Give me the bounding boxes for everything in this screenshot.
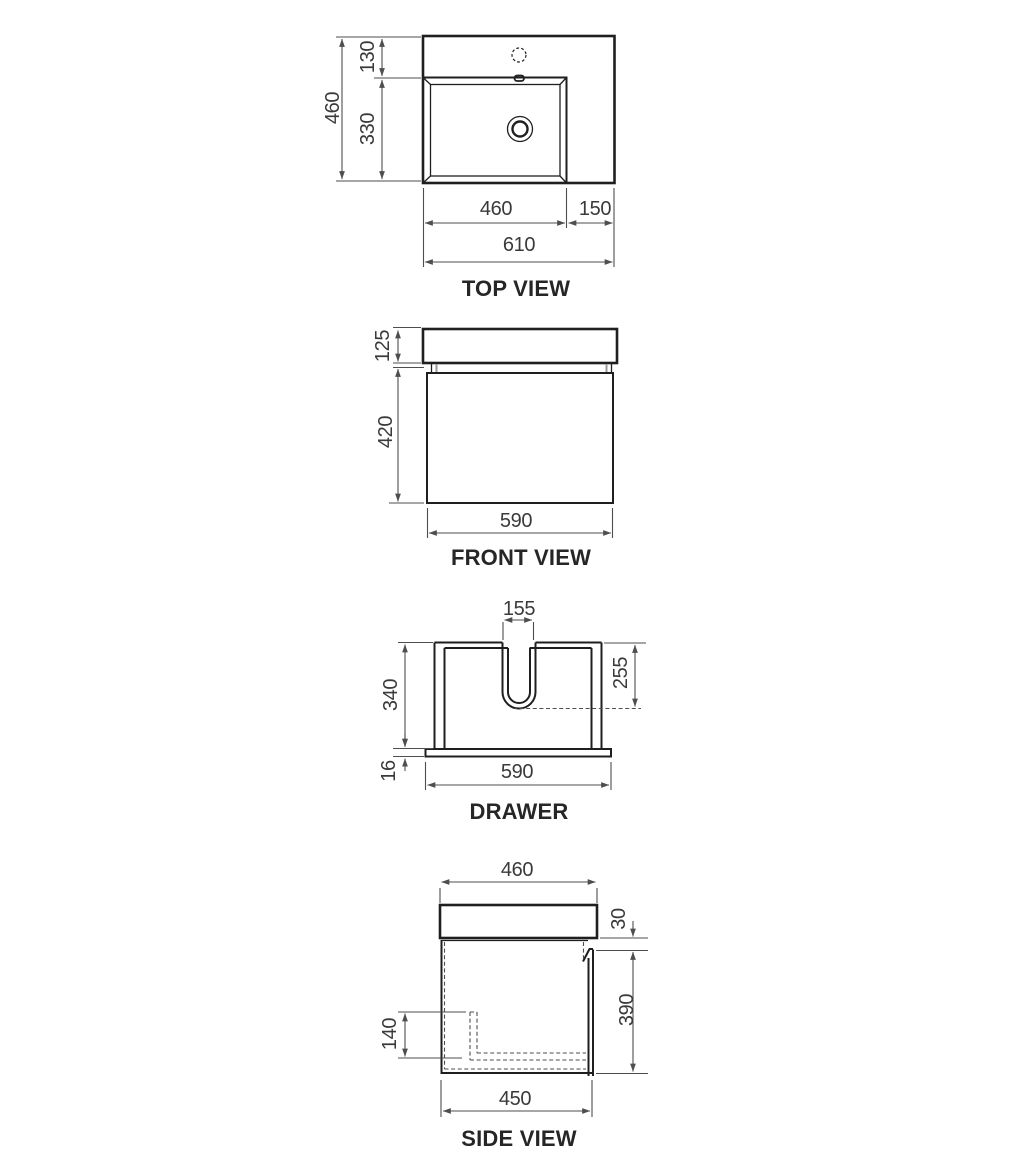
reveal-shadow-ticks — [437, 364, 607, 372]
plumbing-cutout — [503, 643, 536, 709]
benchtop-side-outline — [440, 905, 597, 938]
dim-label-cutout-width: 155 — [503, 599, 535, 619]
reveal-gap-lines — [432, 363, 612, 373]
dim-label-cabinet-width: 590 — [500, 511, 532, 531]
dim-label-cabinet-depth: 450 — [499, 1089, 531, 1109]
dim-label-top-reveal: 30 — [609, 908, 629, 929]
dim-label-drawer-width: 590 — [501, 762, 533, 782]
dim-label-benchtop-height: 125 — [373, 330, 393, 362]
drawer-view-title: DRAWER — [470, 799, 569, 825]
dim-label-recess-height: 140 — [380, 1018, 400, 1050]
dim-label-basin-depth: 330 — [358, 113, 378, 145]
top-view-title: TOP VIEW — [462, 276, 570, 302]
hidden-drawer-lines — [445, 942, 587, 1069]
basin-bevels — [423, 78, 567, 184]
dim-label-cutout-depth: 255 — [611, 657, 631, 689]
vanity-spec-sheet: 460 130 330 460 150 610 TOP VIEW 125 420… — [0, 0, 1024, 1176]
dim-label-front-height: 390 — [617, 994, 637, 1026]
benchtop-outline — [423, 36, 615, 183]
dim-label-tap-ledge-depth: 130 — [358, 41, 378, 73]
side-view-title: SIDE VIEW — [461, 1126, 577, 1152]
dim-label-base-thickness: 16 — [379, 760, 399, 781]
drain-symbol — [508, 117, 533, 142]
drawer-walls — [435, 643, 602, 750]
dim-label-benchtop-depth: 460 — [501, 860, 533, 880]
dim-label-overall-width: 610 — [503, 235, 535, 255]
dim-label-side-ledge: 150 — [579, 199, 611, 219]
front-view-title: FRONT VIEW — [451, 545, 591, 571]
benchtop-front-outline — [423, 329, 617, 363]
technical-drawing — [0, 0, 1024, 1176]
basin-rim — [423, 78, 567, 184]
drawer-base-plate — [426, 749, 612, 757]
cabinet-front-outline — [427, 373, 613, 503]
dim-label-cabinet-height: 420 — [376, 416, 396, 448]
drawer-front-panel — [583, 949, 593, 1076]
top-dimension-lines — [342, 39, 613, 262]
basin-bottom — [431, 85, 561, 177]
dim-label-drawer-height: 340 — [381, 679, 401, 711]
dim-label-overall-depth: 460 — [323, 92, 343, 124]
tap-hole-symbol — [512, 48, 526, 62]
front-view-drawing — [389, 328, 617, 539]
drain-inner-ring — [513, 122, 528, 137]
dim-label-basin-width: 460 — [480, 199, 512, 219]
